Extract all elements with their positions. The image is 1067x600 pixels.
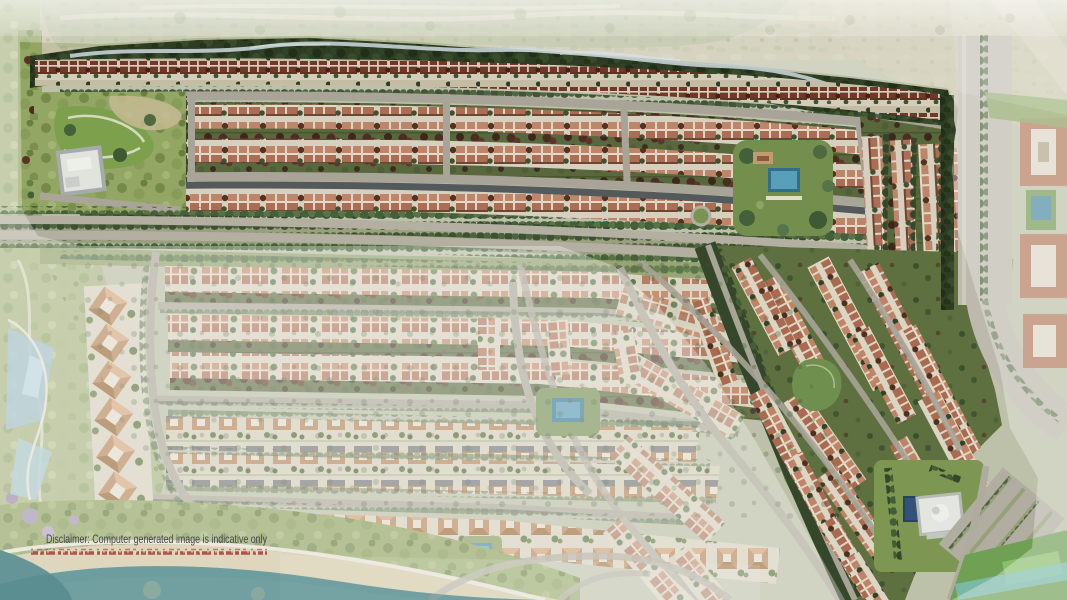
svg-text:Disclaimer: Computer generated: Disclaimer: Computer generated image is … bbox=[46, 532, 267, 546]
